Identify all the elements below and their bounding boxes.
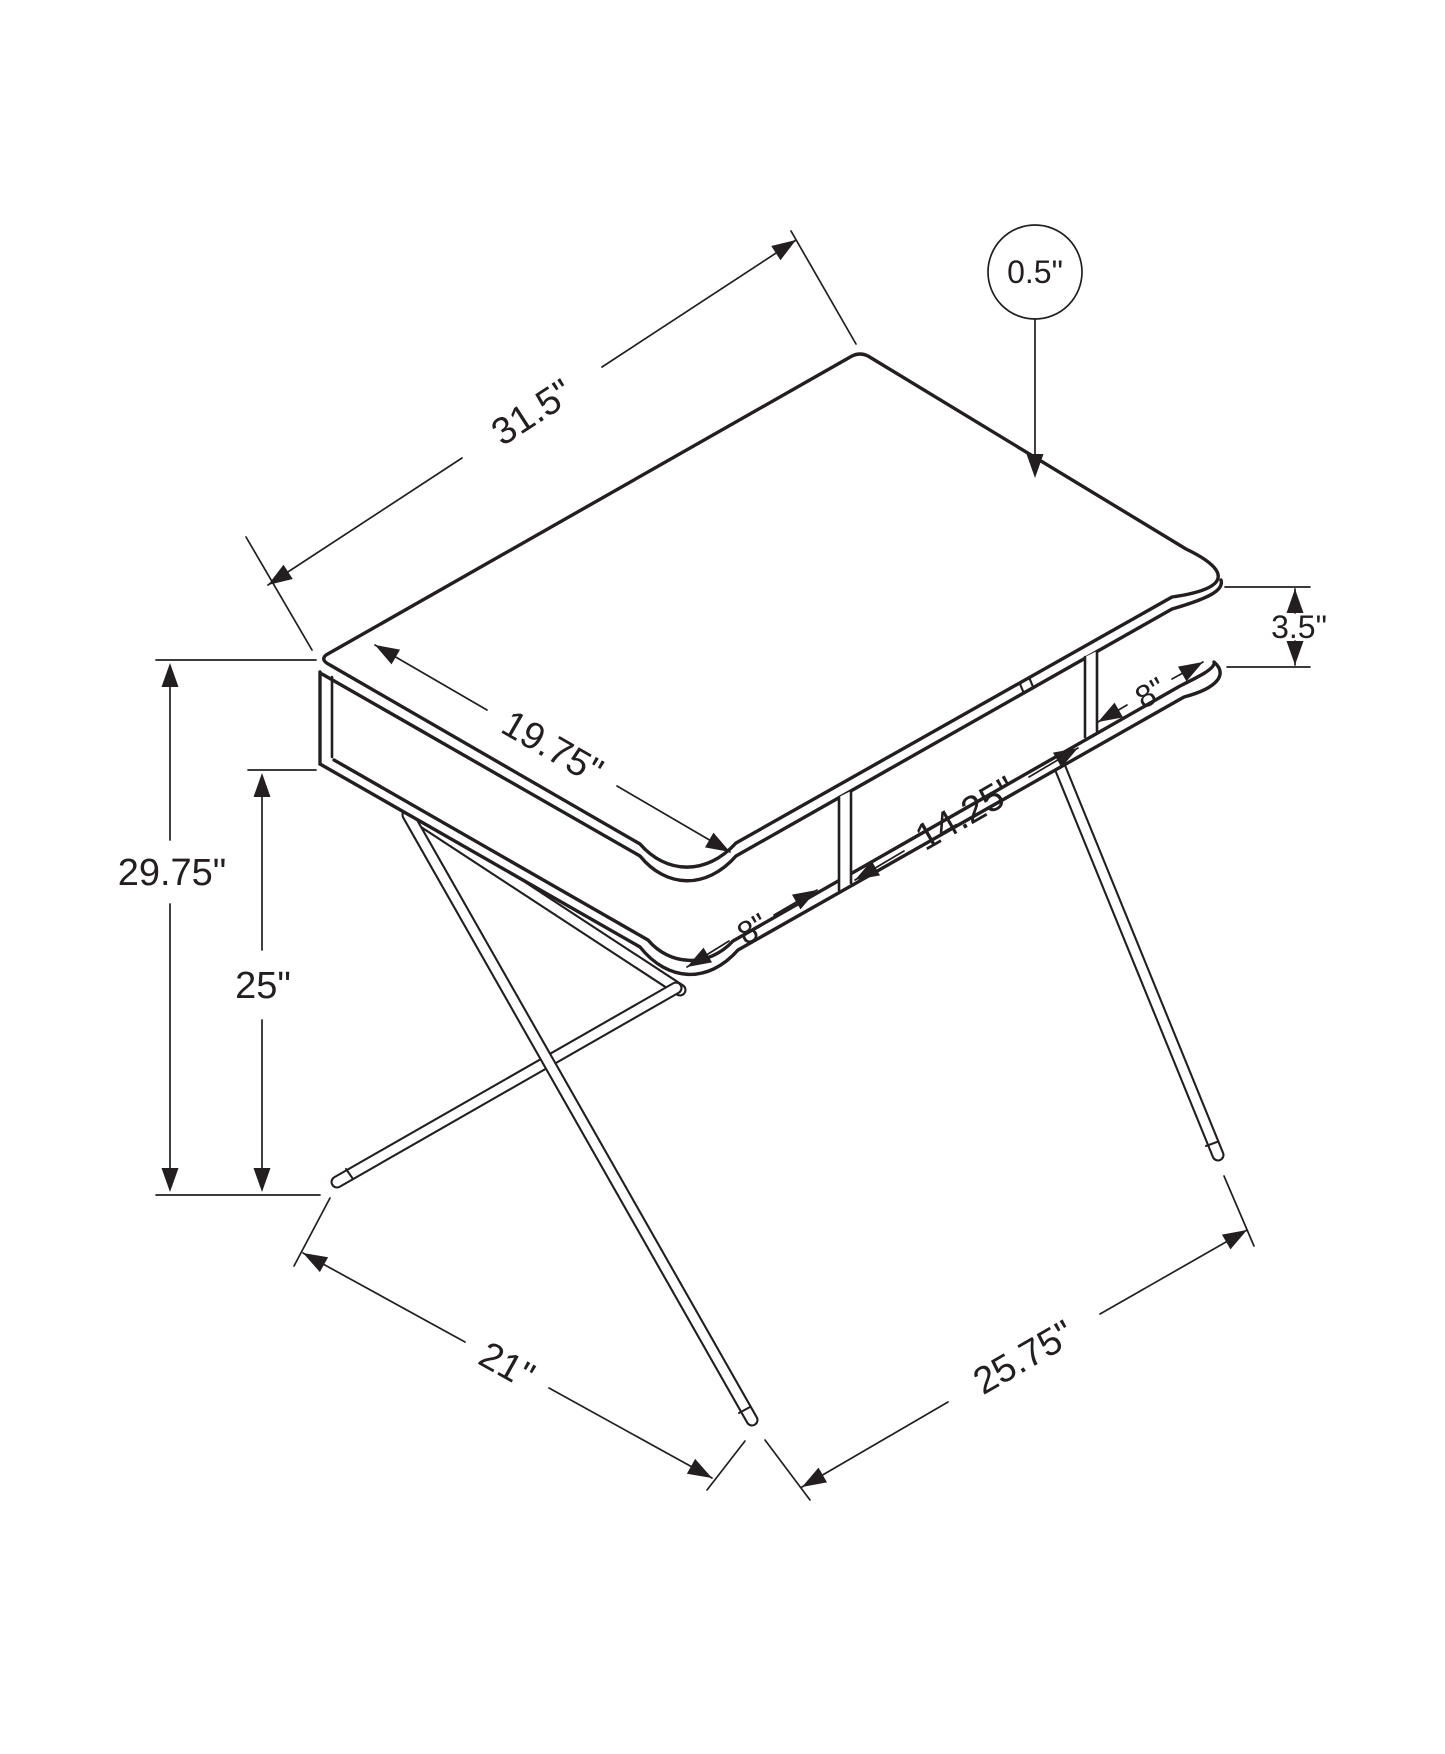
- dim-label-clearance-height: 25": [235, 965, 291, 1007]
- dim-label-base-width: 25.75": [966, 1313, 1081, 1404]
- arrowhead: [254, 773, 271, 797]
- arrowhead: [771, 233, 800, 260]
- arrowhead: [254, 1168, 271, 1192]
- arrowhead: [162, 663, 179, 687]
- arrowhead: [162, 1168, 179, 1192]
- dim-label-hutch-height: 3.5": [1271, 609, 1327, 645]
- dim-label-top-thickness: 0.5": [1007, 254, 1063, 290]
- arrowhead: [1222, 1223, 1251, 1250]
- dim-label-overall-height: 29.75": [118, 852, 227, 894]
- dim-label-base-depth: 21": [472, 1334, 541, 1398]
- arrowhead: [263, 565, 292, 592]
- desk-dimension-diagram: 31.5" 0.5" 19.75" 3.5" 8": [0, 0, 1445, 1754]
- dim-base-width: 25.75": [765, 1176, 1254, 1500]
- line-drawing: 31.5" 0.5" 19.75" 3.5" 8": [0, 0, 1445, 1754]
- dim-hutch-height: 3.5": [1225, 587, 1327, 667]
- dim-clearance-height: 25": [235, 770, 316, 1192]
- dim-base-depth: 21": [294, 1198, 745, 1490]
- arrowhead: [687, 1459, 716, 1486]
- dim-label-top-width: 31.5": [484, 371, 580, 454]
- dim-overall-height: 29.75": [118, 660, 320, 1195]
